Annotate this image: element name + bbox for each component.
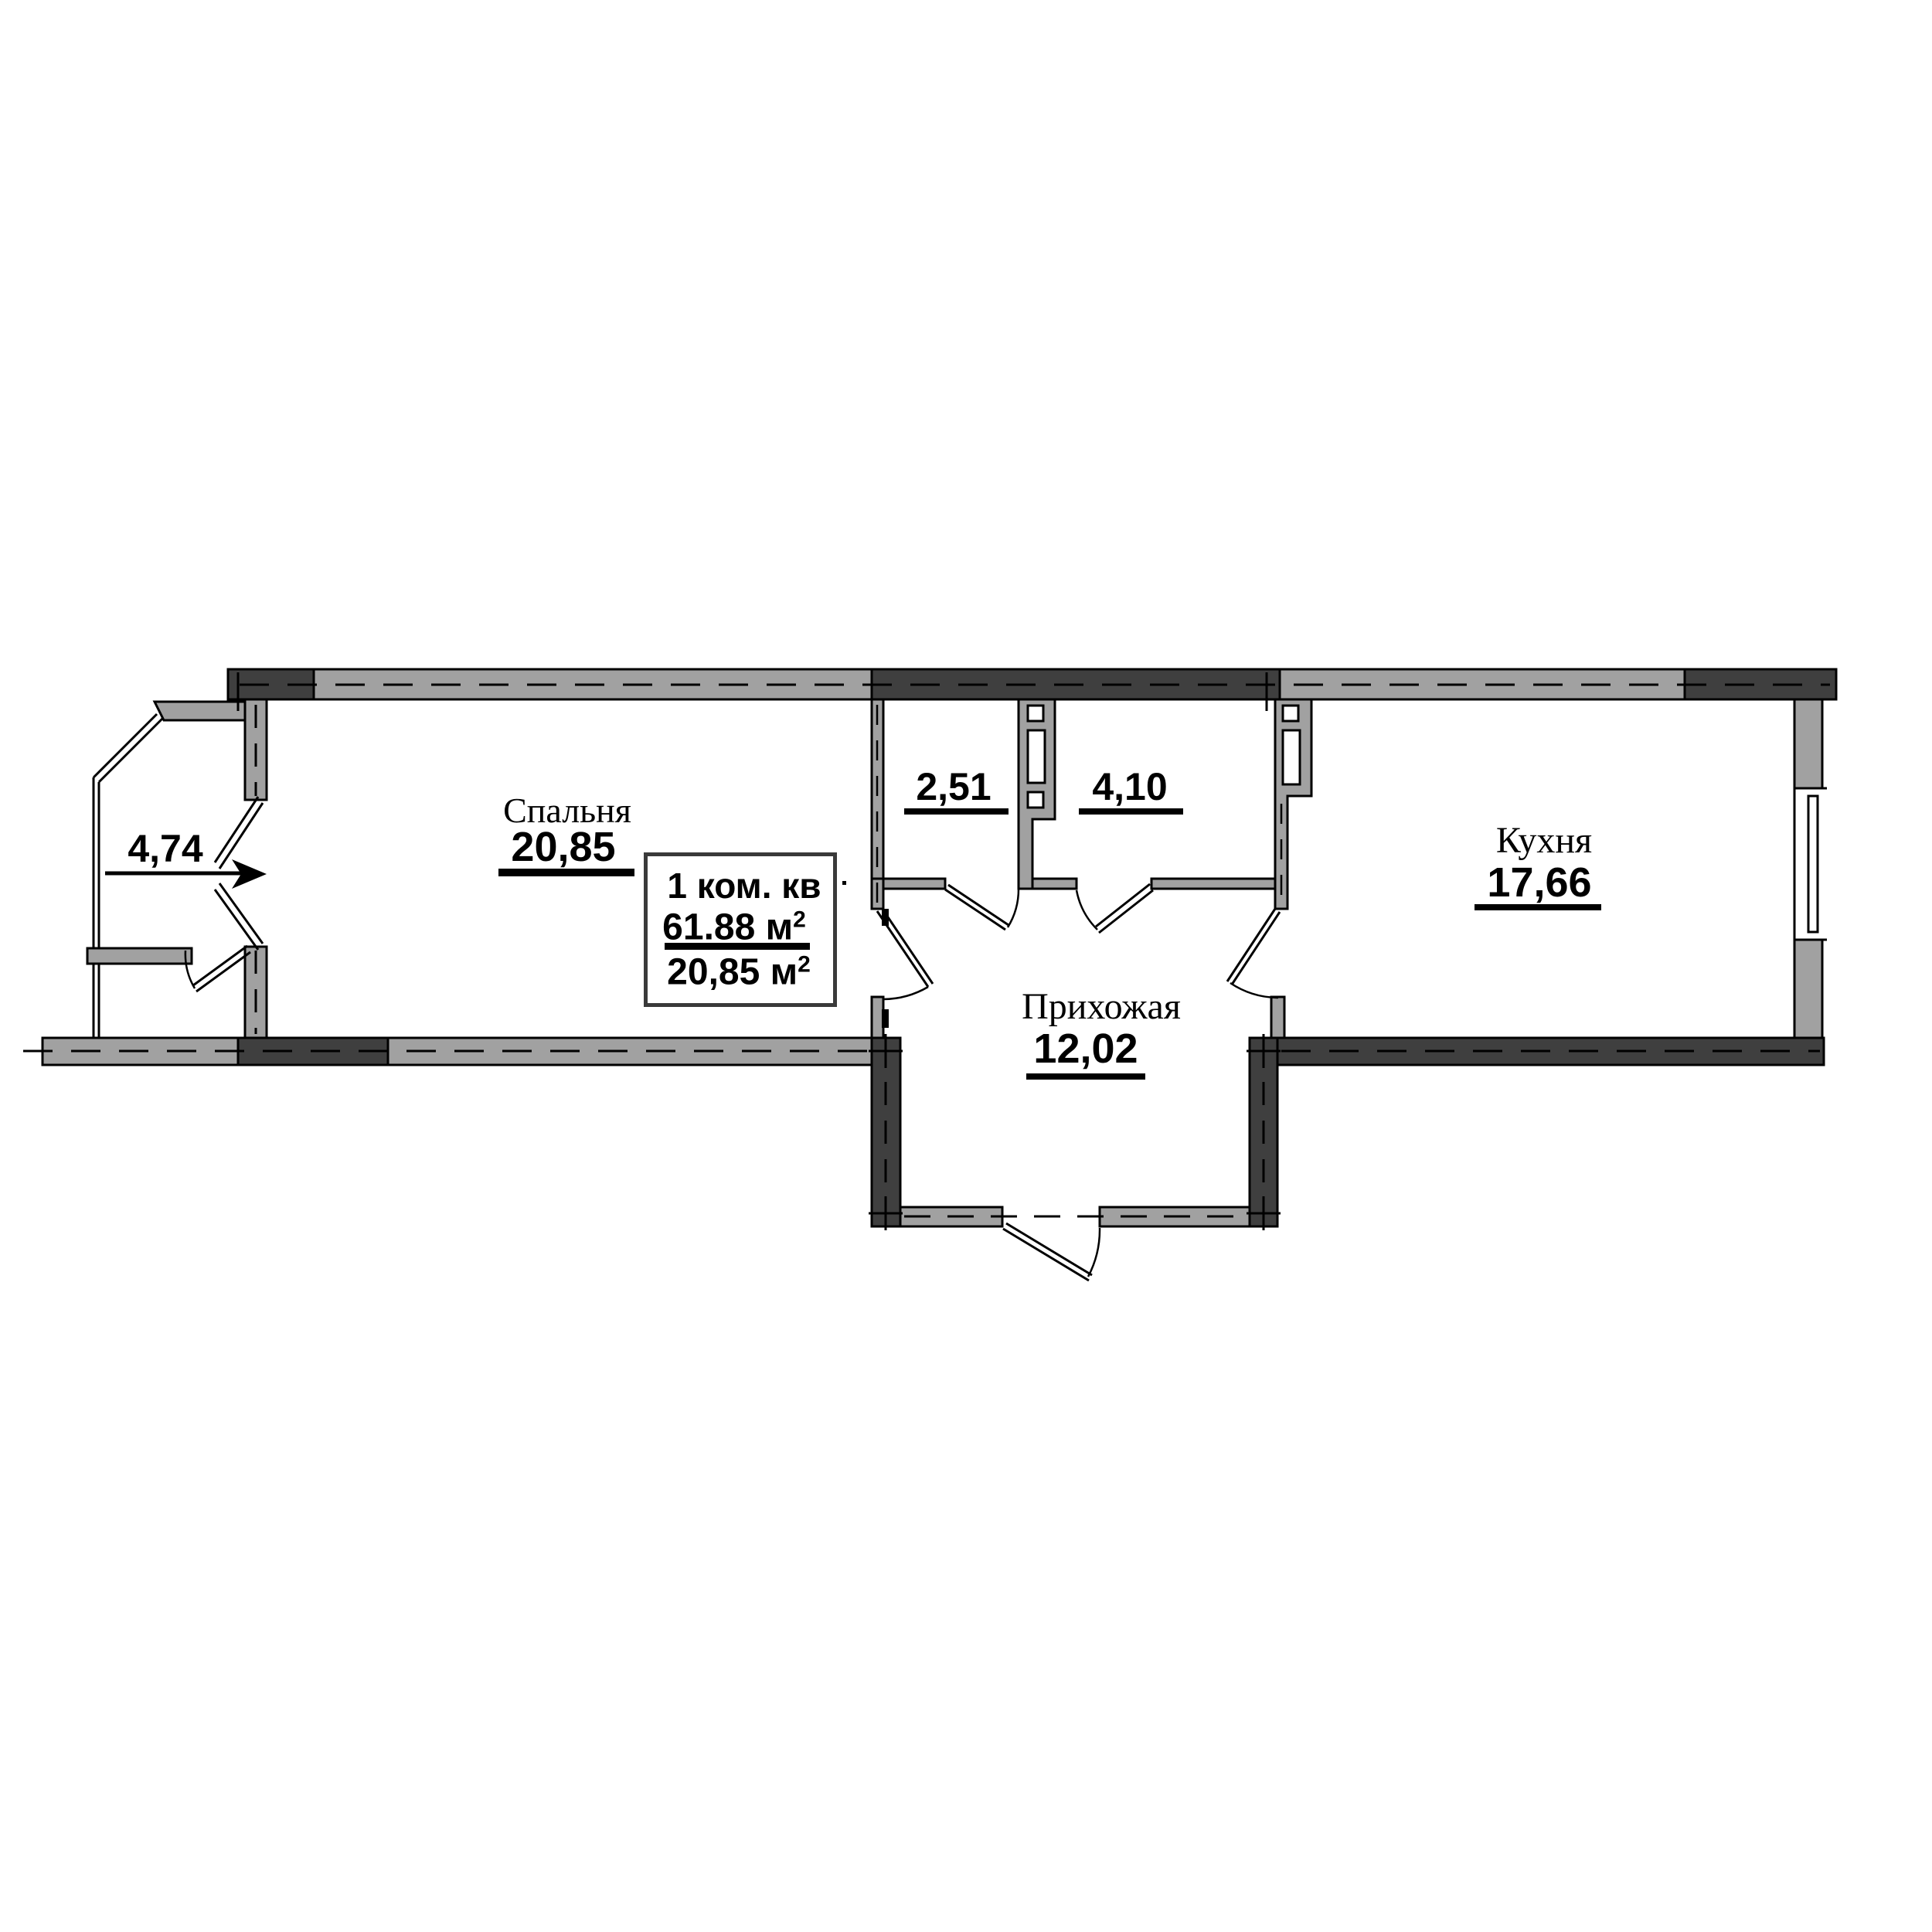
balcony-lower-door xyxy=(185,946,250,992)
plan-dot-mark xyxy=(842,881,846,885)
wc-bottom-wall xyxy=(883,879,945,889)
vent-shaft-left xyxy=(1019,699,1055,889)
hallway-name-label: Прихожая xyxy=(1022,988,1181,1026)
bath-door xyxy=(1077,884,1153,933)
apartment-type-label: 1 ком. кв xyxy=(667,868,821,903)
apartment-info-box: 1 ком. кв 61.88 м2 20,85 м2 xyxy=(644,852,837,1007)
balcony-top-wall xyxy=(155,702,245,720)
bedroom-area-label: 20,85 xyxy=(511,826,615,868)
balcony-glazing xyxy=(94,714,162,1038)
apartment-living-area: 20,85 м2 xyxy=(667,954,811,992)
hallway-area-label: 12,02 xyxy=(1033,1028,1138,1070)
bath-bottom-wall-left xyxy=(1032,879,1077,889)
wc-door xyxy=(945,885,1019,930)
kitchen-door-stub xyxy=(1271,997,1284,1038)
bedroom-area-underline xyxy=(498,869,634,876)
info-box-divider xyxy=(665,943,810,950)
floor-plan-drawing xyxy=(0,0,1932,1932)
kitchen-name-label: Кухня xyxy=(1496,822,1592,859)
kitchen-area-underline xyxy=(1475,904,1601,910)
kitchen-area-label: 17,66 xyxy=(1487,862,1591,903)
bathroom-area-label: 4,10 xyxy=(1092,767,1167,806)
total-area-sup: 2 xyxy=(793,907,806,933)
balcony-bottom-wall xyxy=(87,948,192,964)
entrance-door xyxy=(1003,1223,1100,1281)
kitchen-window xyxy=(1794,788,1827,940)
bathroom-area-underline xyxy=(1079,808,1183,815)
bottom-wall xyxy=(43,1038,1824,1065)
hallway-area-underline xyxy=(1026,1073,1145,1080)
floor-plan-page: Спальня 20,85 4,74 2,51 4,10 Кухня 17,66… xyxy=(0,0,1932,1932)
living-area-sup: 2 xyxy=(798,952,811,978)
wc-area-underline xyxy=(904,808,1009,815)
kitchen-door xyxy=(1227,909,1280,998)
wc-area-label: 2,51 xyxy=(916,767,991,806)
bath-bottom-wall-right xyxy=(1151,879,1284,889)
balcony-area-label: 4,74 xyxy=(128,829,202,868)
apartment-total-area: 61.88 м2 xyxy=(662,909,806,947)
bedroom-door xyxy=(877,908,933,1028)
